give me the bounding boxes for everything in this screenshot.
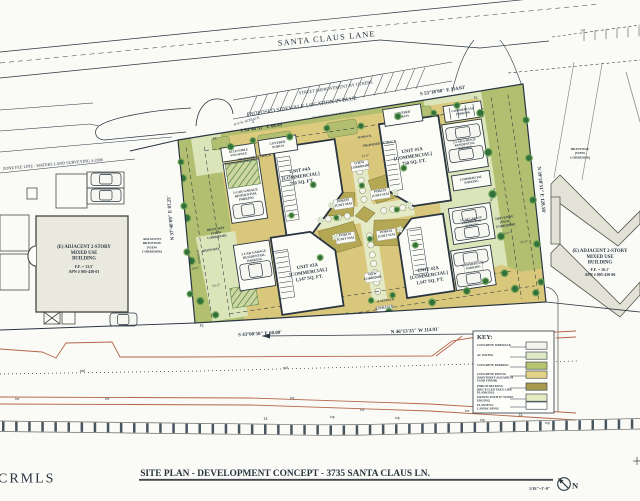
svg-text:CONCRETE SIDEWALK: CONCRETE SIDEWALK [477, 343, 512, 347]
svg-text:PLANKING): PLANKING) [477, 391, 494, 395]
svg-text:BUILDING: BUILDING [72, 257, 96, 262]
svg-text:CORRIDOR): CORRIDOR) [142, 250, 162, 254]
svg-text:top: top [395, 416, 400, 420]
svg-text:top: top [330, 415, 335, 419]
svg-text:PL: PL [213, 136, 218, 141]
svg-text:PL: PL [474, 95, 479, 100]
svg-text:BUILDING: BUILDING [588, 261, 613, 266]
svg-text:top: top [545, 421, 550, 425]
svg-text:KEY:: KEY: [477, 334, 492, 341]
svg-text:MIXED USE: MIXED USE [71, 251, 97, 256]
svg-text:SITE PLAN - DEVELOPMENT CONCEP: SITE PLAN - DEVELOPMENT CONCEPT - 3735 S… [140, 469, 430, 479]
svg-text:msl: msl [80, 369, 85, 373]
svg-text:AC PAVING: AC PAVING [477, 353, 494, 357]
svg-text:EDGING): EDGING) [477, 398, 490, 402]
svg-text:CORRIDOR]: CORRIDOR] [570, 155, 590, 159]
svg-text:CONCRETE PARKING: CONCRETE PARKING [477, 363, 509, 367]
svg-text:FL: FL [200, 324, 204, 328]
svg-text:msl: msl [283, 366, 288, 370]
svg-text:toe: toe [15, 397, 20, 401]
svg-text:(E) ADJACENT 2-STORY: (E) ADJACENT 2-STORY [57, 245, 111, 250]
svg-text:14: 14 [263, 416, 268, 421]
svg-text:APN # 005-430-01: APN # 005-430-01 [69, 269, 100, 274]
svg-text:1/16"=1'-0": 1/16"=1'-0" [529, 486, 550, 491]
svg-text:toe: toe [360, 408, 365, 412]
svg-text:toe: toe [465, 409, 470, 413]
svg-text:toe: toe [290, 396, 295, 400]
svg-text:CRMLS: CRMLS [0, 472, 55, 487]
svg-text:toe: toe [105, 397, 110, 401]
svg-text:MIXED USE: MIXED USE [586, 255, 613, 260]
svg-text:APN # 005-430-06: APN # 005-430-06 [585, 272, 616, 277]
svg-text:top: top [480, 418, 485, 422]
svg-text:SAND FINISH): SAND FINISH) [477, 379, 497, 383]
svg-text:LANDSCAPING: LANDSCAPING [477, 406, 500, 410]
svg-text:N: N [572, 481, 579, 491]
svg-text:(E) ADJACENT 2-STORY: (E) ADJACENT 2-STORY [573, 249, 628, 254]
svg-text:cut: cut [581, 28, 586, 32]
